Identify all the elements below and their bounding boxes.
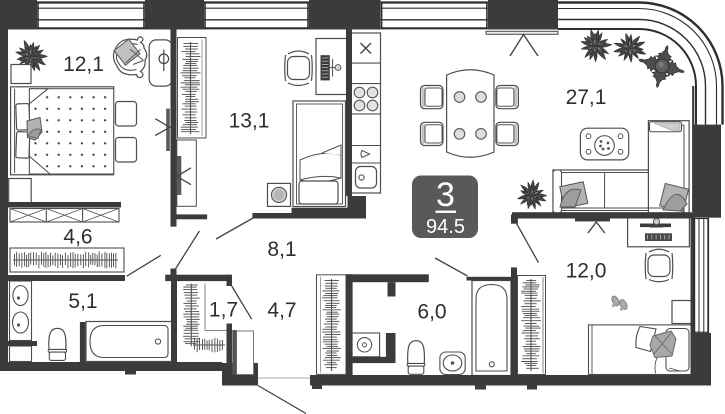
svg-text:27,1: 27,1 <box>566 86 607 109</box>
svg-text:94.5: 94.5 <box>426 216 465 238</box>
svg-text:8,1: 8,1 <box>267 238 296 261</box>
svg-text:12,0: 12,0 <box>566 260 607 283</box>
svg-text:12,1: 12,1 <box>63 53 104 76</box>
svg-text:1,7: 1,7 <box>209 299 238 322</box>
svg-text:5,1: 5,1 <box>68 290 97 313</box>
svg-text:3: 3 <box>436 176 455 214</box>
svg-text:4,7: 4,7 <box>267 299 296 322</box>
svg-text:4,6: 4,6 <box>63 226 92 249</box>
svg-text:13,1: 13,1 <box>229 110 270 133</box>
svg-text:6,0: 6,0 <box>417 301 446 324</box>
